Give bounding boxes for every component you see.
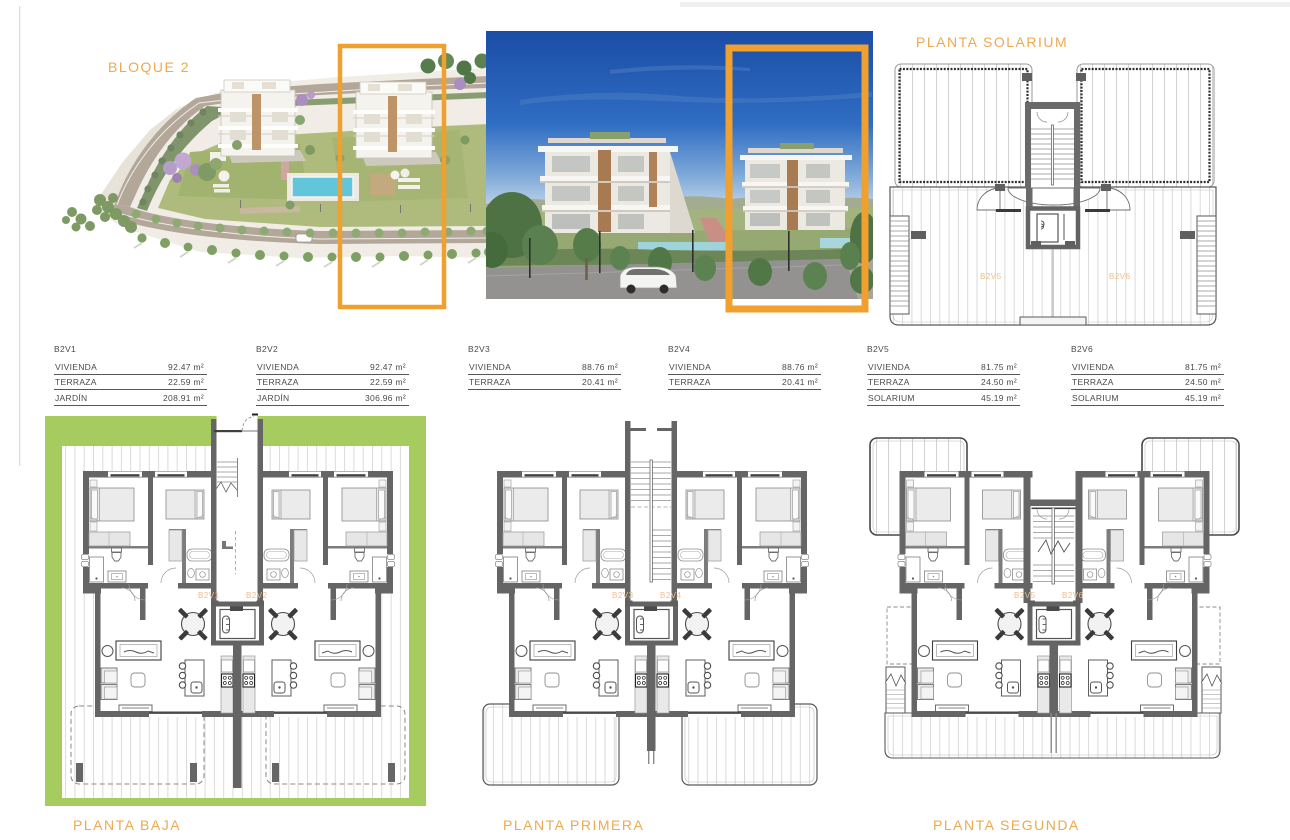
svg-text:B2V5: B2V5 [1014, 591, 1036, 600]
svg-text:PLANTA BAJA: PLANTA BAJA [73, 817, 181, 833]
svg-text:PLANTA SOLARIUM: PLANTA SOLARIUM [916, 34, 1068, 50]
svg-text:B2V2: B2V2 [246, 591, 268, 600]
svg-text:B2V6: B2V6 [1109, 272, 1131, 281]
svg-text:BLOQUE 2: BLOQUE 2 [108, 59, 190, 75]
svg-text:B2V4: B2V4 [660, 591, 682, 600]
svg-text:B2V5: B2V5 [980, 272, 1002, 281]
svg-text:B2V3: B2V3 [612, 591, 634, 600]
svg-text:PLANTA PRIMERA: PLANTA PRIMERA [503, 817, 644, 833]
svg-text:PLANTA SEGUNDA: PLANTA SEGUNDA [933, 817, 1080, 833]
svg-text:B2V1: B2V1 [198, 591, 220, 600]
svg-text:B2V6: B2V6 [1062, 591, 1084, 600]
